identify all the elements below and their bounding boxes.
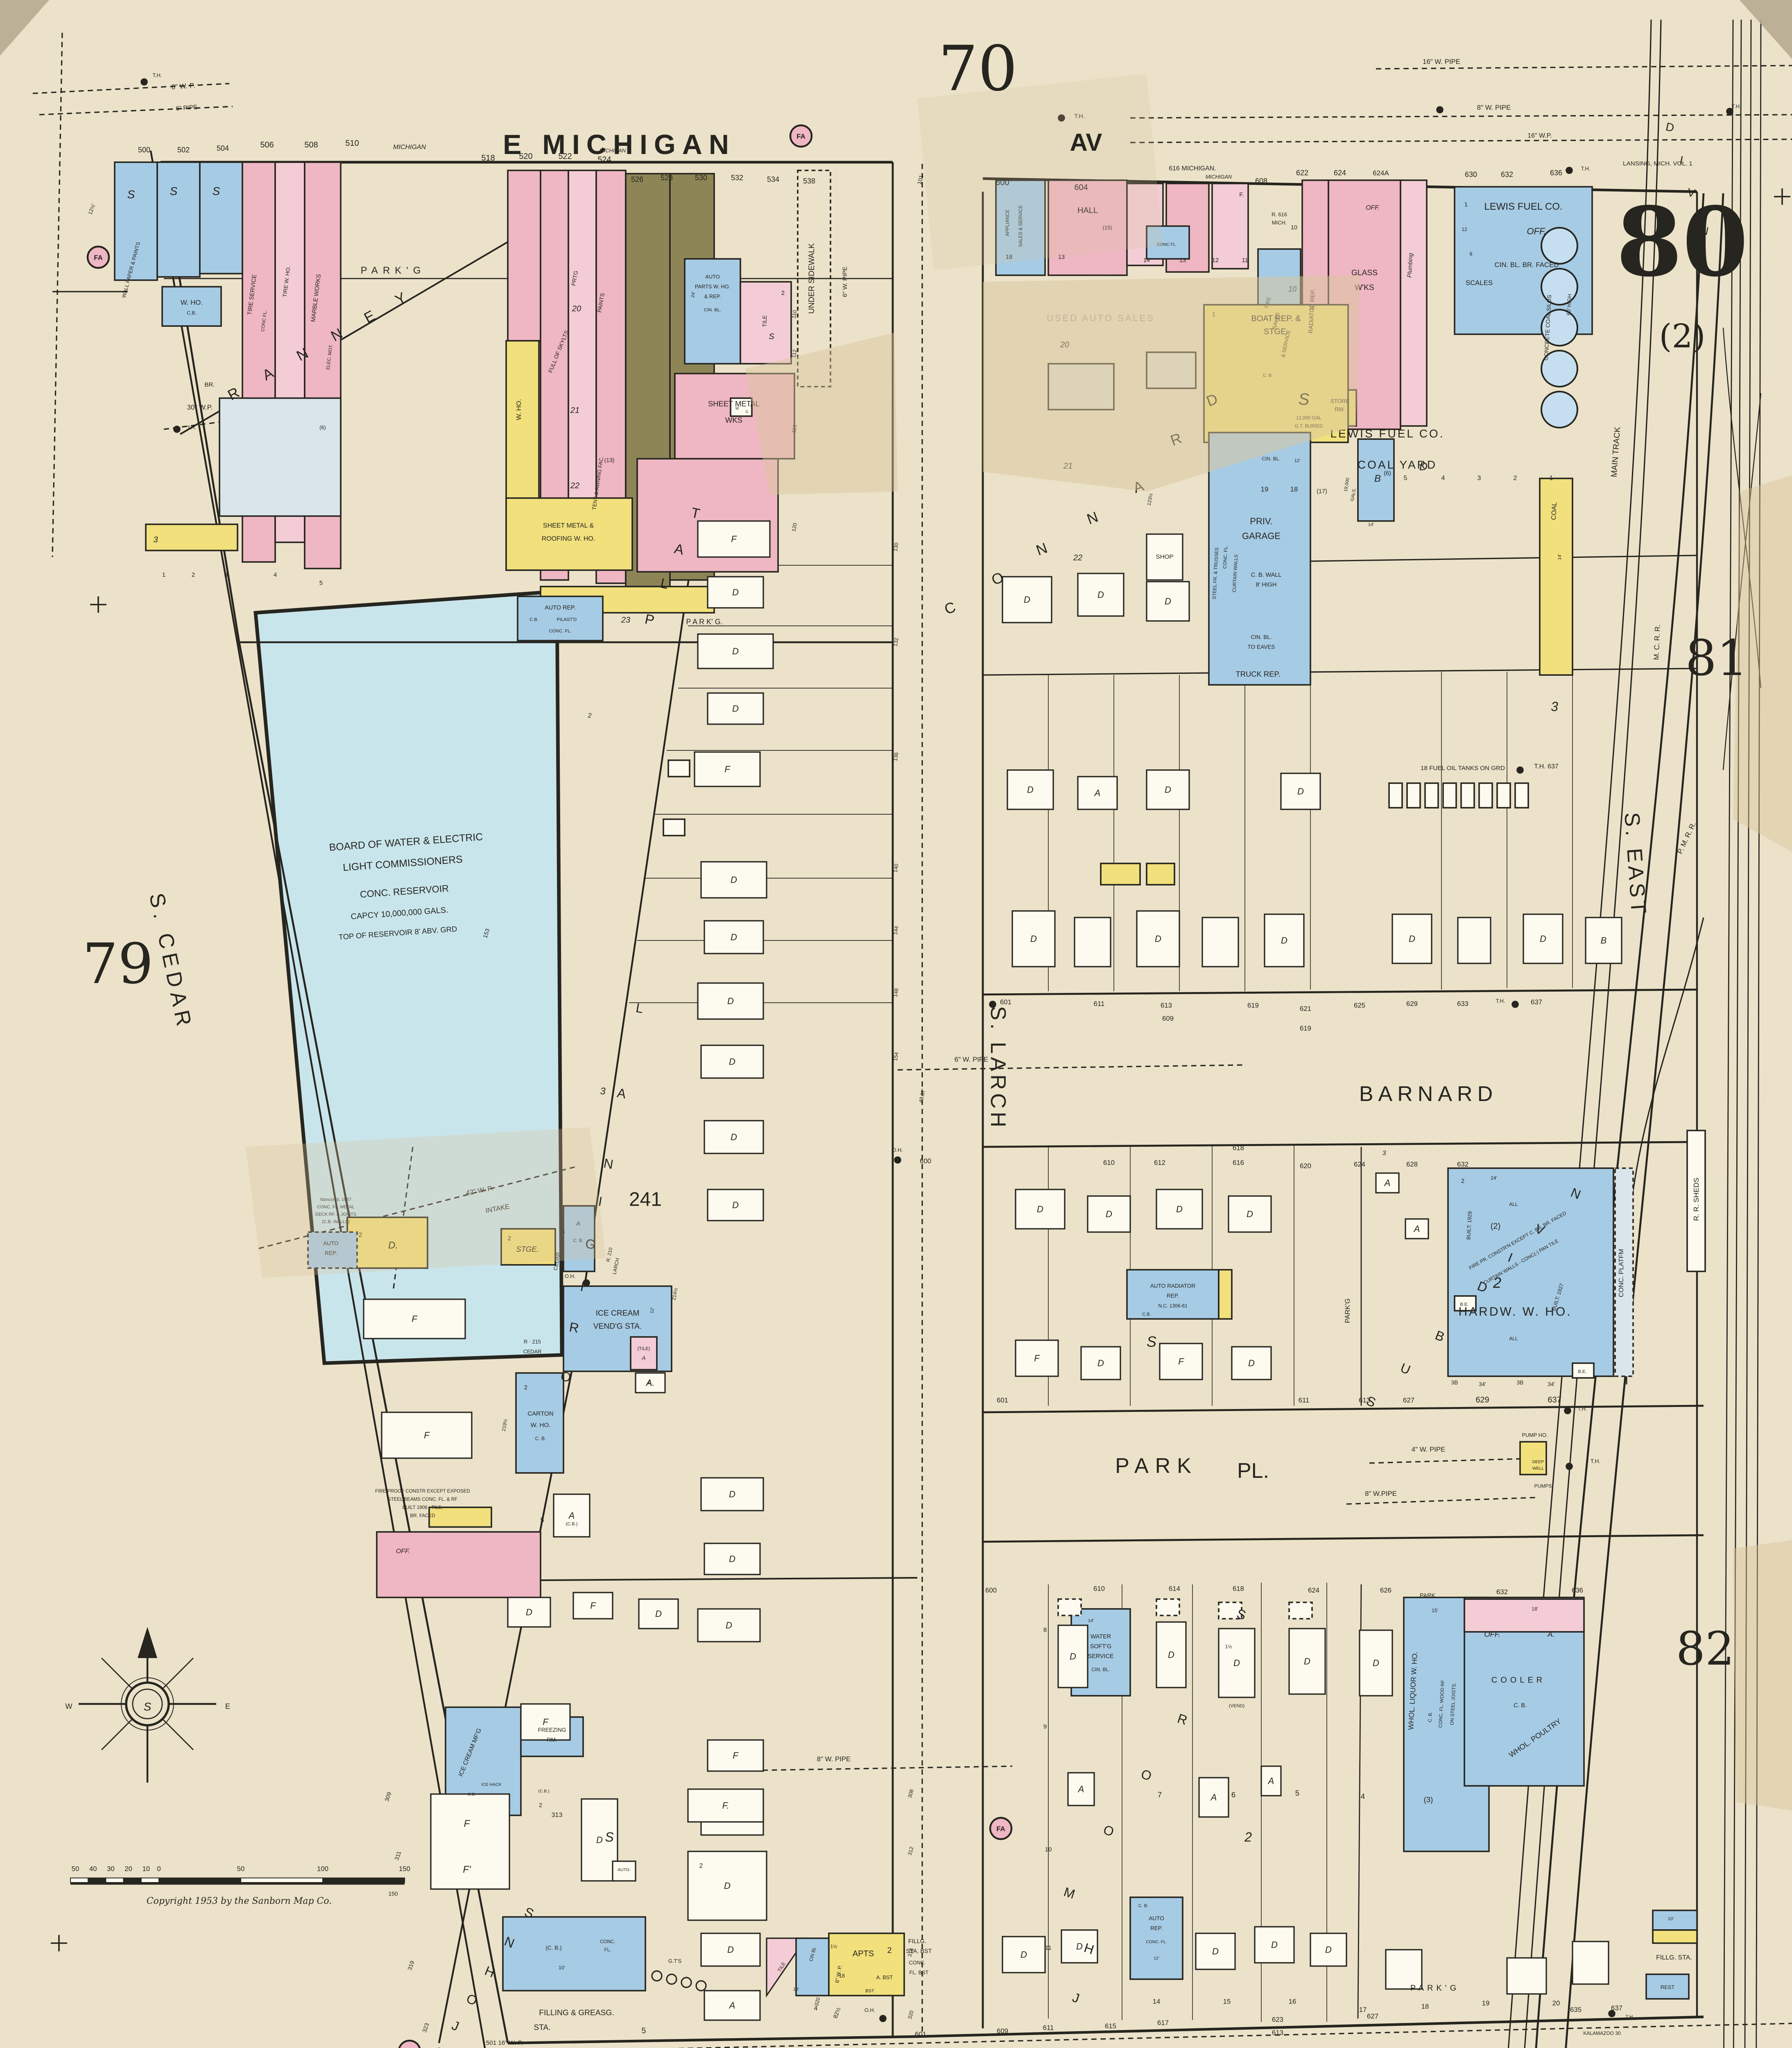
map-label: R · 215 [524,1339,541,1345]
map-label: 60' HIGH [1566,294,1573,315]
scale-bar-tick: 40 [89,1865,97,1873]
map-label: 12' [1154,1956,1159,1961]
house-label: D [732,704,739,714]
scale-bar-tick: 100 [317,1865,328,1873]
building [1101,863,1140,885]
map-label: 611 [1043,2024,1054,2032]
map-label: 502 [177,146,190,154]
map-label: FILLG. STA. [1656,1954,1692,1961]
map-label: 150 [388,1890,398,1897]
map-label: 14' [1557,554,1563,560]
map-label: 619 [1247,1001,1259,1009]
map-label: 3 [153,535,158,544]
map-label: DEEP [1532,1460,1544,1464]
map-label: 2 [192,571,195,578]
building [506,498,632,570]
map-label: 629 [1406,1000,1418,1008]
map-label: 501 16" W. P. [486,2039,523,2046]
map-label: 510 [345,139,359,148]
map-label: S [1147,1333,1156,1350]
map-label: 636 [1550,169,1562,177]
map-label: 630 [1465,170,1477,179]
map-label: 148 [892,988,900,997]
map-label: 611 [1094,1000,1105,1008]
paper-stain [246,1127,606,1278]
building [162,287,221,326]
map-label: 637 [1611,2004,1622,2012]
house-label: D [1106,1209,1112,1219]
map-label: 637 [1531,998,1542,1006]
street-e-michigan: E MICHIGAN [503,129,735,160]
map-label: 601 [1000,998,1011,1006]
house-label: A [1094,788,1101,798]
map-label: 18 [1290,485,1298,493]
house-label: D [731,932,737,942]
map-label: 632 [1496,1588,1508,1596]
house-label: A [1384,1178,1391,1188]
house-label: D [1304,1656,1310,1667]
sheet-number: 80 [1616,186,1749,298]
map-label: 1 [1550,475,1553,482]
map-label: 627 [1367,2012,1378,2020]
map-label: 6 [1231,1790,1235,1799]
map-label: 610 [1093,1585,1105,1593]
building [1147,863,1174,885]
map-label: 24' [1491,1175,1497,1181]
map-label: 12 [1462,227,1467,232]
map-label: T.H. [1496,998,1505,1004]
building [631,1337,657,1370]
scale-bar-tick: 30 [107,1865,115,1873]
map-label: 626 [1380,1586,1392,1594]
scale-bar-segment [323,1878,405,1883]
map-label: 632 [1501,170,1513,179]
building [1156,1599,1179,1615]
map-label: 526 [631,175,643,184]
house-label: D [1271,1940,1278,1950]
house-label: F [733,1751,739,1761]
building [1515,783,1528,808]
house-label: D [729,1554,735,1564]
map-label: 614 [1169,1585,1180,1593]
map-label: 10' [1668,1917,1674,1921]
map-label: 14 [1143,257,1150,264]
map-label: 508 [304,140,318,150]
map-label: B [1374,473,1381,484]
hydrant-dot [173,426,181,433]
map-label: 530 [695,174,707,182]
map-label: 624 [1334,169,1346,177]
house-label: D [1076,1942,1083,1952]
map-label: & REP. [704,293,721,299]
house-label: F [724,764,731,775]
house-label: D [1155,934,1161,944]
map-label: A. [1547,1630,1554,1638]
map-label: TO EAVES [1248,644,1275,650]
map-label: 3B [1451,1380,1458,1386]
house-label: D [1165,785,1171,795]
map-label: LEWIS FUEL CO. [1484,201,1562,212]
map-label: OFF. [1366,204,1380,211]
map-label: SOFT'G [1090,1643,1111,1650]
map-label: 132 [892,637,900,647]
map-label: 619 [1300,1024,1311,1032]
scale-bar-segment [141,1878,159,1883]
map-label: R. R. SHEDS [1692,1178,1700,1221]
house-label: D [726,1620,732,1631]
map-label: 2 [1461,1178,1464,1185]
map-label: 528 [661,174,673,182]
map-label: S [144,1700,152,1713]
map-label: 11 [1242,257,1248,264]
map-label: BR. [204,381,215,388]
map-label: 613 [1161,1001,1172,1009]
map-label: T.H. [1625,2014,1634,2020]
house-label: D [1070,1652,1076,1662]
street-s-larch: S. LARCH [986,1006,1010,1130]
map-label: 3 [1382,1150,1386,1157]
map-label: F [464,1818,471,1829]
map-label: 18 [1421,2003,1429,2010]
map-label: 621 [1300,1005,1311,1013]
street-michigan-av: AV [1070,129,1102,156]
map-label: 601 [997,1396,1008,1404]
hydrant-dot [894,1156,901,1164]
map-label: CIN. BL. BR. FACED [1495,261,1559,269]
map-label: KALAMAZOO 30 [1583,2030,1621,2036]
map-label: W. HO. [181,299,203,306]
map-label: CIN. BL. [704,308,721,313]
map-label: 600 [985,1586,997,1594]
map-label: 624 [1308,1586,1319,1594]
map-label: 14' [1368,522,1374,527]
map-label: 628 [1406,1160,1418,1168]
hydrant-dot [1511,1001,1519,1008]
map-label: A [641,1355,645,1361]
map-label: C. B. WALL [1251,572,1282,578]
house-label: D [1212,1946,1219,1957]
scale-bar-segment [70,1878,88,1883]
map-label: OFF. [1527,226,1546,236]
map-label: 3B [1517,1380,1524,1386]
map-label: S [769,332,774,341]
map-label: G.T'S [668,1958,681,1964]
map-label: 10 [1291,224,1297,231]
map-label: 600 [920,1157,931,1165]
map-label: 2 [781,290,785,297]
map-label: 629 [1475,1396,1489,1405]
hydrant-dot [1516,766,1524,774]
map-label: ICE CREAM [596,1309,640,1318]
building [1219,1270,1232,1319]
map-label: 18 FUEL OIL TANKS ON GRD [1421,765,1505,772]
hydrant-dot [140,78,148,86]
house-label: A [568,1511,575,1521]
map-label: 22 [1073,553,1082,562]
house-label: D [1540,934,1546,944]
map-label: 632 [1457,1160,1468,1168]
street-pl: PL. [1237,1459,1269,1483]
house-label: D [732,646,739,657]
house-label: D [1409,934,1415,944]
map-label: 613 [1359,1396,1370,1404]
map-label: D.H. [892,1147,903,1153]
map-label: PILAST'D [557,617,577,622]
building [146,524,238,551]
map-label: COOLER [1491,1676,1545,1685]
scale-bar-tick: 20 [124,1865,132,1873]
house-label: A [1077,1784,1084,1794]
house-label: D [732,1200,739,1210]
map-label: VEND'G STA. [593,1322,642,1331]
map-label: 4 [814,2005,818,2012]
map-label: FIRE PROOF CONSTR EXCEPT EXPOSED [375,1488,470,1494]
map-label: F' [463,1864,471,1875]
map-label: 12' [649,1307,655,1314]
map-label: 15 [1223,1998,1231,2005]
map-label: 534 [767,175,779,184]
street-park: PARK [1115,1454,1198,1478]
map-label: PUMP HO. [1522,1432,1548,1438]
map-label: PARTS W. HO. [695,283,730,290]
map-label: O.H. [565,1273,575,1279]
building [157,162,200,277]
map-label: AUTO [705,274,720,280]
map-label: 3 [224,571,228,578]
map-label: (3) [1424,1795,1433,1804]
map-label: CONC. [600,1939,615,1944]
map-label: 24' [690,291,696,298]
building [1479,783,1492,808]
house-label: D [724,1881,731,1891]
map-label: REP. [1167,1293,1179,1299]
map-label: 8" W. PIPE [817,1755,851,1763]
house-label: D [729,1489,735,1500]
map-label: CIN. BL. [1262,456,1280,462]
map-label: UNDER SIDEWALK [808,243,816,314]
house-label: D [1373,1658,1379,1668]
copyright: Copyright 1953 by the Sanborn Map Co. [147,1896,332,1906]
map-label: 500 [138,146,150,154]
map-label: PRIV. [1250,516,1272,526]
house-label: D [1297,786,1304,797]
map-label: STA. [534,2023,550,2032]
map-label: REST [1661,1984,1674,1990]
map-label: (2) [1491,1222,1500,1231]
adjacent-sheet-right-upper: 81 [1686,630,1748,687]
map-label: (TILE) [637,1346,650,1351]
map-label: D [1419,460,1428,473]
map-label: 16' [793,1987,799,1992]
map-label: 2 [699,1862,703,1869]
map-label: T.H. [1591,1458,1600,1464]
map-label: 625 [1354,1001,1365,1009]
map-label: 16 [1289,1998,1296,2005]
map-label: FILLING & GREASG. [539,2009,614,2017]
map-label: 1½ [1225,1644,1232,1649]
hydrant-dot [1436,106,1444,113]
map-label: 12 [1212,257,1219,264]
house [1075,918,1111,967]
map-label: Plumbing [1406,253,1414,278]
house-label: D [1027,785,1034,795]
map-label: OFF. [396,1548,410,1555]
map-label: 637 [1548,1396,1561,1405]
map-label: T.H. [1578,1406,1587,1412]
map-label: 3 [1477,475,1481,482]
map-label: G [746,410,749,414]
map-label: 532 [731,174,743,182]
house-label: F [1034,1353,1040,1364]
map-label: W [66,1702,72,1710]
map-label: C.B. [529,617,539,622]
map-label: 633 [1457,1000,1468,1008]
map-label: 622 [1296,169,1308,177]
map-label: 14 [1153,1998,1161,2005]
map-label: 627 [1403,1396,1414,1404]
map-label: 8" W.PIPE [1365,1490,1397,1497]
map-label: 7 [1158,1790,1162,1799]
map-label: 538 [803,177,815,185]
map-label: WATER [1091,1633,1111,1640]
building [1653,1910,1697,1930]
house-label: D [731,875,737,885]
map-label: REP. [1150,1925,1163,1931]
map-label: 1½ [830,1944,837,1949]
house-label: A [1210,1792,1217,1803]
fire-alarm-label: FA [796,132,805,140]
map-label: C. B. [1427,1712,1433,1722]
house-label: D [526,1607,532,1618]
map-label: T.H. [1732,103,1741,109]
house-label: F [412,1314,418,1324]
map-label: 10' [559,1965,565,1971]
map-label: 616 [1233,1159,1244,1167]
map-canvas: FDDDFDDDDDDDDDFDDDADDDDDBDADDDDDDFDFDAAD… [0,0,1792,2048]
map-label: CONC. PLATFM [1618,1249,1625,1297]
map-label: (17) [1317,488,1327,495]
map-label: 2 [524,1384,527,1391]
building [1461,783,1474,808]
scale-bar-segment [88,1878,106,1883]
map-label: (13) [604,457,615,463]
house-label: D [729,1057,735,1067]
map-label: 6" W. PIPE [842,267,848,297]
map-label: GARAGE [1242,531,1281,541]
map-label: 12' [1294,458,1301,463]
map-label: 518 [481,154,495,163]
map-label: 144 [892,926,900,935]
map-label: S [213,185,220,197]
map-label: M. C. R. R. [1652,624,1661,660]
map-label: CIN. BL. [1251,634,1272,640]
map-label: 3 [600,1086,606,1097]
map-label: CONC. FL. [1146,1940,1167,1944]
map-label: APTS [853,1949,874,1958]
map-label: 140 [892,863,900,873]
map-label: 617 [1157,2019,1169,2027]
map-label: 19 [1482,1999,1490,2007]
map-label: 2 [887,1946,891,1955]
map-label: FREEZING [538,1727,566,1733]
map-label: LEWIS FUEL CO. [1330,427,1444,440]
map-label: 34' [1548,1381,1555,1387]
map-label: AUTO REP. [545,605,575,611]
house-label: A [1413,1224,1420,1234]
map-label: 609 [1162,1015,1174,1022]
building [377,1532,541,1597]
house-label: D [1325,1945,1332,1955]
map-label: C. B. [535,1436,546,1441]
screenshot-viewport: FDDDFDDDDDDDDDFDDDADDDDDBDADDDDDDFDFDAAD… [0,0,1792,2048]
map-label: 4 [274,571,277,578]
scale-bar-segment [241,1878,323,1883]
map-label: C. B. [1514,1702,1527,1709]
house-label: D [1281,936,1287,946]
map-label: SERVICE [1088,1653,1114,1660]
building [663,819,685,836]
house-label: D [655,1609,662,1619]
map-label: R. 616 [1272,211,1287,217]
map-label: 6" W. PIPE [955,1056,988,1063]
house-label: D [1247,1209,1253,1219]
map-label: 4 [1361,1792,1365,1801]
map-label: 30" W.P. [187,403,213,411]
map-label: BST [865,1989,874,1994]
map-label: FILLG. [908,1938,926,1945]
map-label: SHEET METAL & [543,522,594,529]
house [1458,918,1491,963]
building [508,170,541,341]
map-label: 8" W. P. [171,82,195,91]
map-label: 9 [1043,1723,1047,1730]
house [1573,1942,1609,1984]
map-label: ROOFING W. HO. [542,535,595,542]
map-label: 16" W. PIPE [1423,58,1460,66]
map-label: MICH. [1272,220,1287,226]
map-label: T.H. 637 [1534,763,1559,770]
scale-bar-tick: 50 [237,1865,245,1873]
map-label: ALL [1509,1201,1518,1207]
map-label: B.E. [1460,1302,1468,1307]
hydrant-dot [1564,1407,1571,1414]
map-label: SCALES [1466,279,1493,287]
map-label: ALL [1509,1336,1518,1341]
adjacent-sheet-bottom: 84 [1134,2045,1192,2048]
map-label: 15' [1432,1608,1438,1613]
map-label: 504 [217,144,229,152]
map-label: 624 [1354,1160,1365,1168]
map-label: 612 [1154,1159,1165,1167]
map-label: O.H. [864,2007,875,2013]
map-label: 5 [1295,1789,1299,1797]
map-label: 8' HIGH [1256,582,1277,588]
map-label: 616 MICHIGAN. [1169,165,1216,172]
sanborn-map-page: FDDDFDDDDDDDDDFDDDADDDDDBDADDDDDDFDFDAAD… [0,0,1792,2048]
map-label: C.B. [187,310,196,316]
house-label: F [590,1601,596,1611]
map-label: OFF. [1484,1630,1500,1638]
map-label: CONC. FL. [549,629,571,634]
map-label: 19 [1261,485,1269,493]
map-label: 2 [539,1802,542,1809]
map-label: T.H. [153,72,162,78]
map-label: 8 [1043,1627,1047,1633]
map-label: 16" W.P. [1527,132,1552,139]
map-label: 21 [570,406,579,415]
adjacent-sheet-right-lower: 82 [1676,1622,1735,1676]
map-label: 2 [1514,475,1517,482]
